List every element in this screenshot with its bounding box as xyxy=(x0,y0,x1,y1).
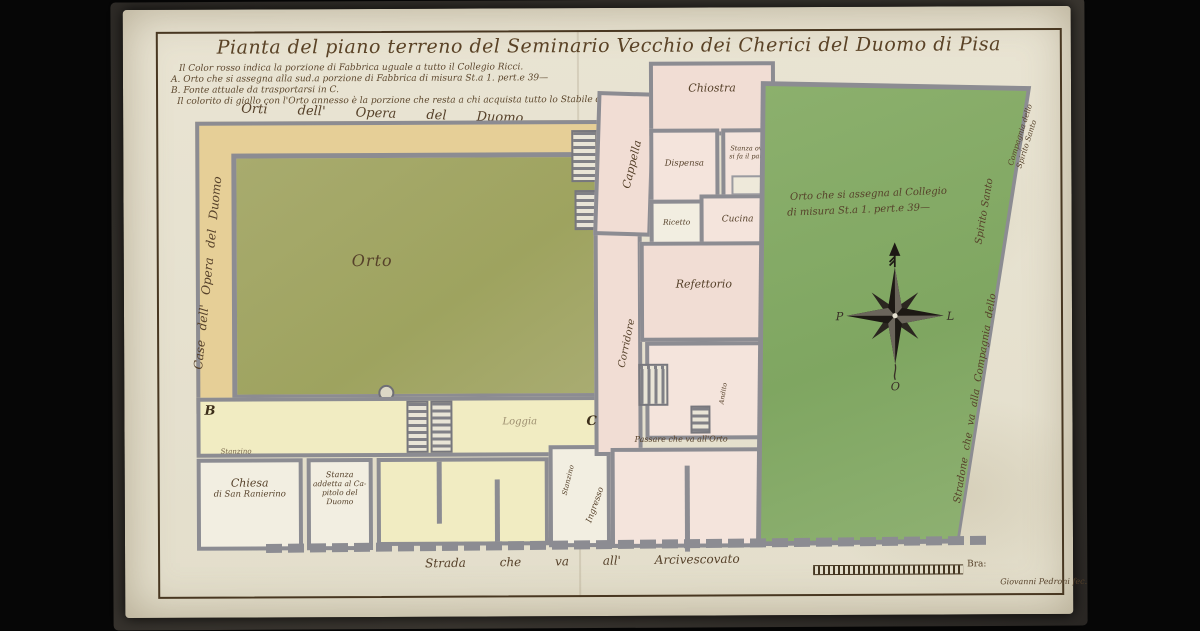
legend-item-a: A. Orto che si assegna alla sud.a porzio… xyxy=(171,73,548,85)
room-divider xyxy=(437,462,442,524)
compass-south-letter: O xyxy=(891,380,900,393)
scale-label: Bra: xyxy=(967,559,986,569)
staircase-small xyxy=(690,406,710,434)
chiesa-san-ranierino-room: Chiesa di San Ranierino xyxy=(197,458,303,550)
stanzino-a-label: Stanzino xyxy=(221,448,252,456)
orto-left-garden xyxy=(231,152,606,400)
plan-title: Pianta del piano terreno del Seminario V… xyxy=(156,33,1062,59)
surveyor-signature: Giovanni Pedroni fec. xyxy=(937,577,1087,587)
scale-bar xyxy=(813,564,963,575)
compass-north-arrow xyxy=(890,245,900,268)
capitolo-label-line1: Stanza xyxy=(311,470,369,479)
dispensa-room: Dispensa xyxy=(649,128,719,203)
refettorio-label: Refettorio xyxy=(644,277,764,291)
capitolo-label-line2: addetta al Ca- xyxy=(311,479,369,488)
compass-rose: P L O xyxy=(830,236,961,395)
passare-label: Passare che va all'Orto xyxy=(635,434,728,443)
chiesa-label-line1: Chiesa xyxy=(201,476,299,489)
room-divider xyxy=(495,479,500,541)
yellow-rooms-block xyxy=(377,457,549,546)
chiesa-label-line2: di San Ranierino xyxy=(201,489,299,499)
south-pink-rooms xyxy=(611,447,763,548)
staircase-hall-west xyxy=(406,401,428,453)
paper-sheet: Pianta del piano terreno del Seminario V… xyxy=(123,6,1074,618)
legend-item-b: B. Fonte attuale da trasportarsi in C. xyxy=(171,85,339,96)
marker-c: C xyxy=(586,414,596,429)
corridore-room xyxy=(594,230,643,456)
compass-west-letter: P xyxy=(835,310,844,323)
loggia-label: Loggia xyxy=(502,416,537,427)
ricetto-label: Ricetto xyxy=(654,218,700,227)
compass-east-letter: L xyxy=(946,310,955,323)
staircase-northeast xyxy=(571,130,597,182)
staircase-center xyxy=(638,364,668,406)
legend-color-note: Il Color rosso indica la porzione di Fab… xyxy=(179,62,523,74)
compass-south-tail xyxy=(894,364,895,380)
capitolo-label-line3: pitolo del Duomo xyxy=(311,488,369,506)
staircase-hall-east xyxy=(430,401,452,453)
dispensa-label: Dispensa xyxy=(653,158,715,168)
stanza-capitolo-room: Stanza addetta al Ca- pitolo del Duomo xyxy=(307,458,373,550)
marker-b: B xyxy=(204,404,215,419)
refettorio-room: Refettorio xyxy=(640,241,768,342)
orto-left-label: Orto xyxy=(352,251,393,270)
